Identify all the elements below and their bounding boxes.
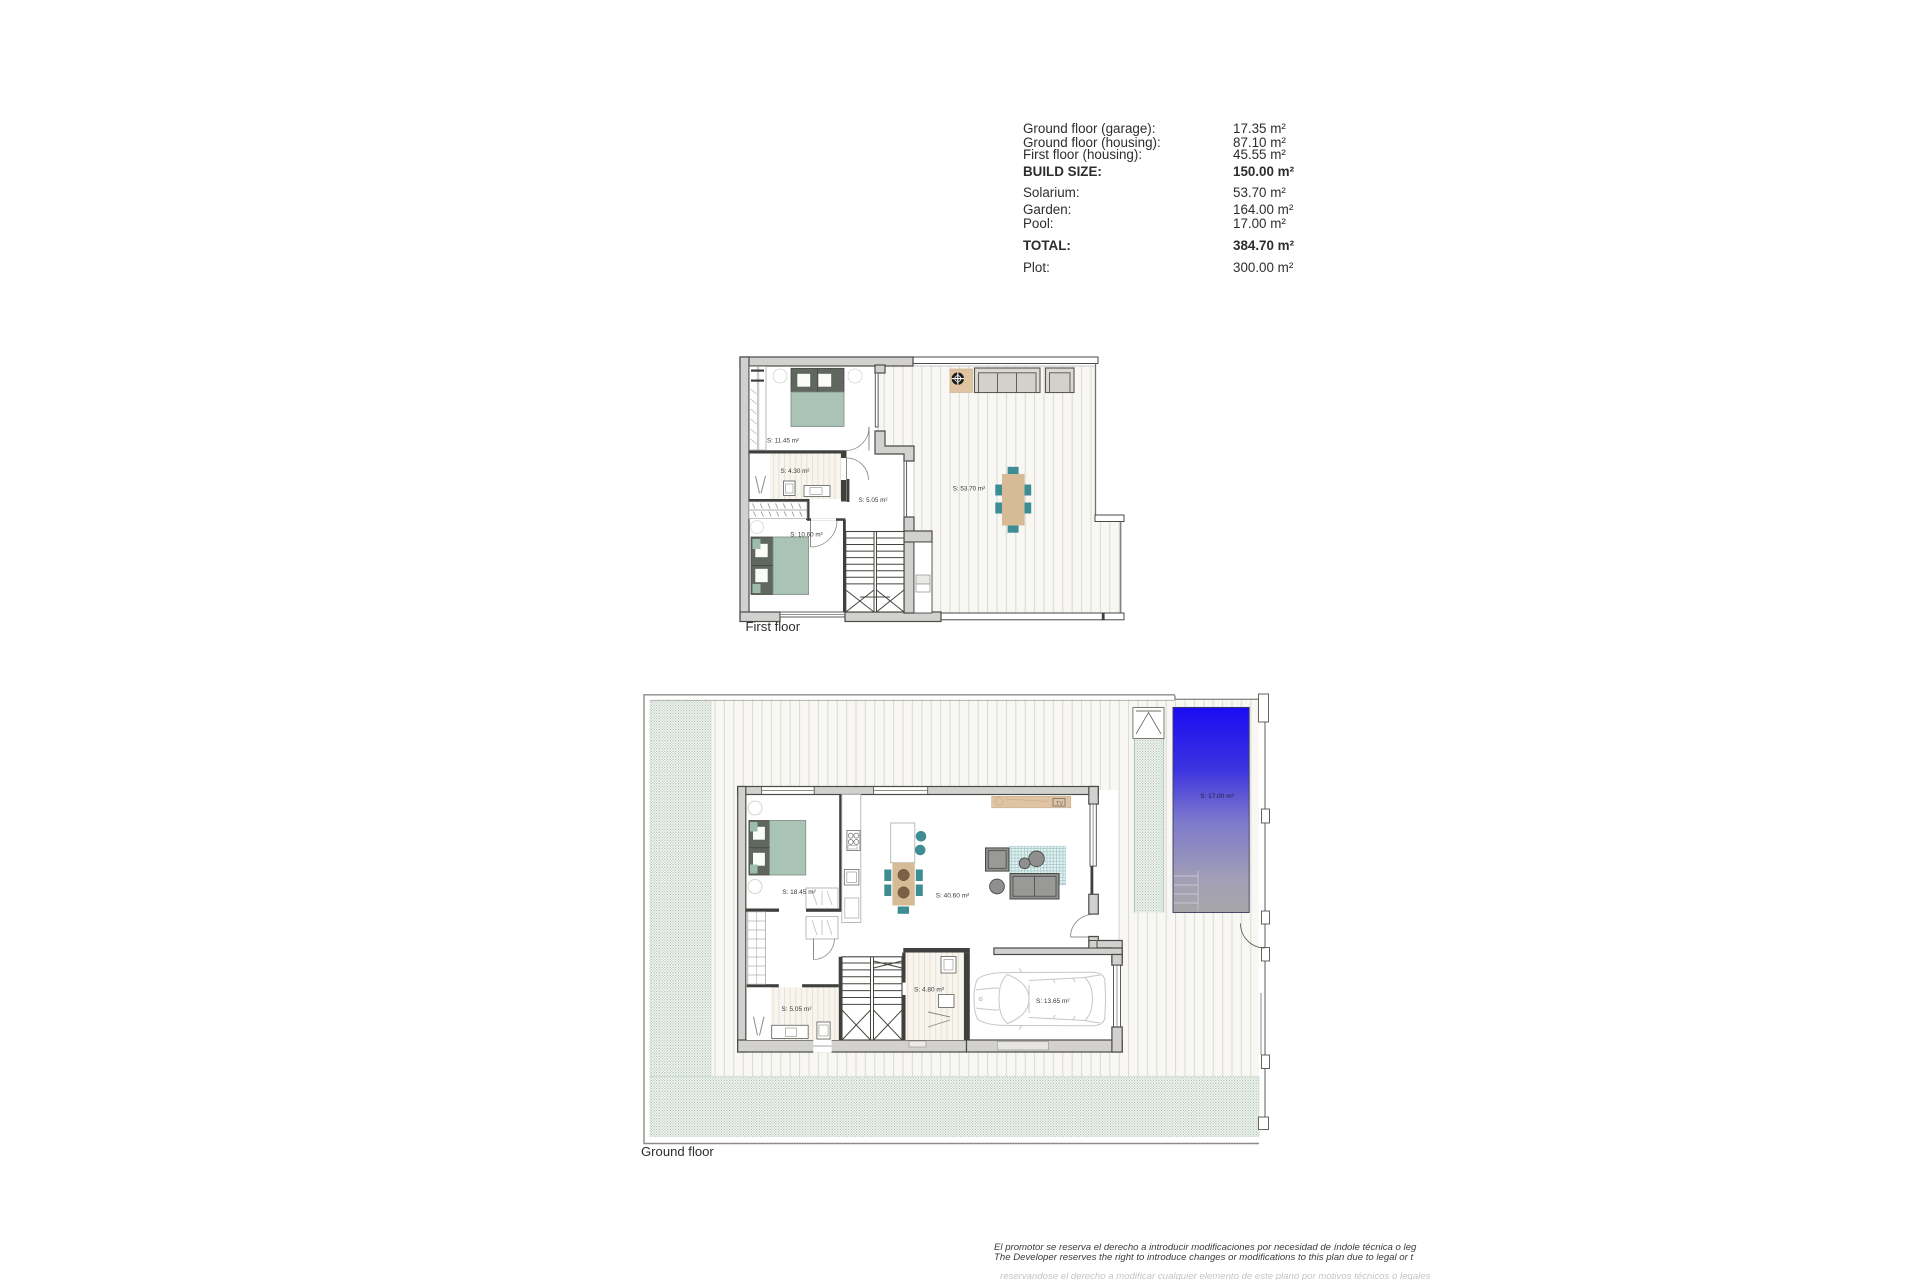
svg-text:S: 4.80 m²: S: 4.80 m²: [914, 986, 945, 993]
svg-text:S: 13.65 m²: S: 13.65 m²: [1036, 998, 1070, 1005]
svg-text:S: 11.45 m²: S: 11.45 m²: [767, 437, 799, 444]
svg-text:S: 5.05 m²: S: 5.05 m²: [782, 1006, 813, 1013]
svg-text:S: 53.70 m²: S: 53.70 m²: [953, 486, 986, 493]
svg-text:S: 18.45 m²: S: 18.45 m²: [782, 889, 816, 896]
svg-text:S: 5.05 m²: S: 5.05 m²: [858, 497, 887, 504]
svg-text:S: 17.00 m²: S: 17.00 m²: [1200, 793, 1234, 800]
svg-text:S: 10.60 m²: S: 10.60 m²: [790, 532, 823, 539]
svg-text:TV: TV: [1056, 801, 1063, 807]
svg-text:S: 4.30 m²: S: 4.30 m²: [780, 468, 809, 475]
svg-text:S: 40.60 m²: S: 40.60 m²: [936, 893, 970, 900]
